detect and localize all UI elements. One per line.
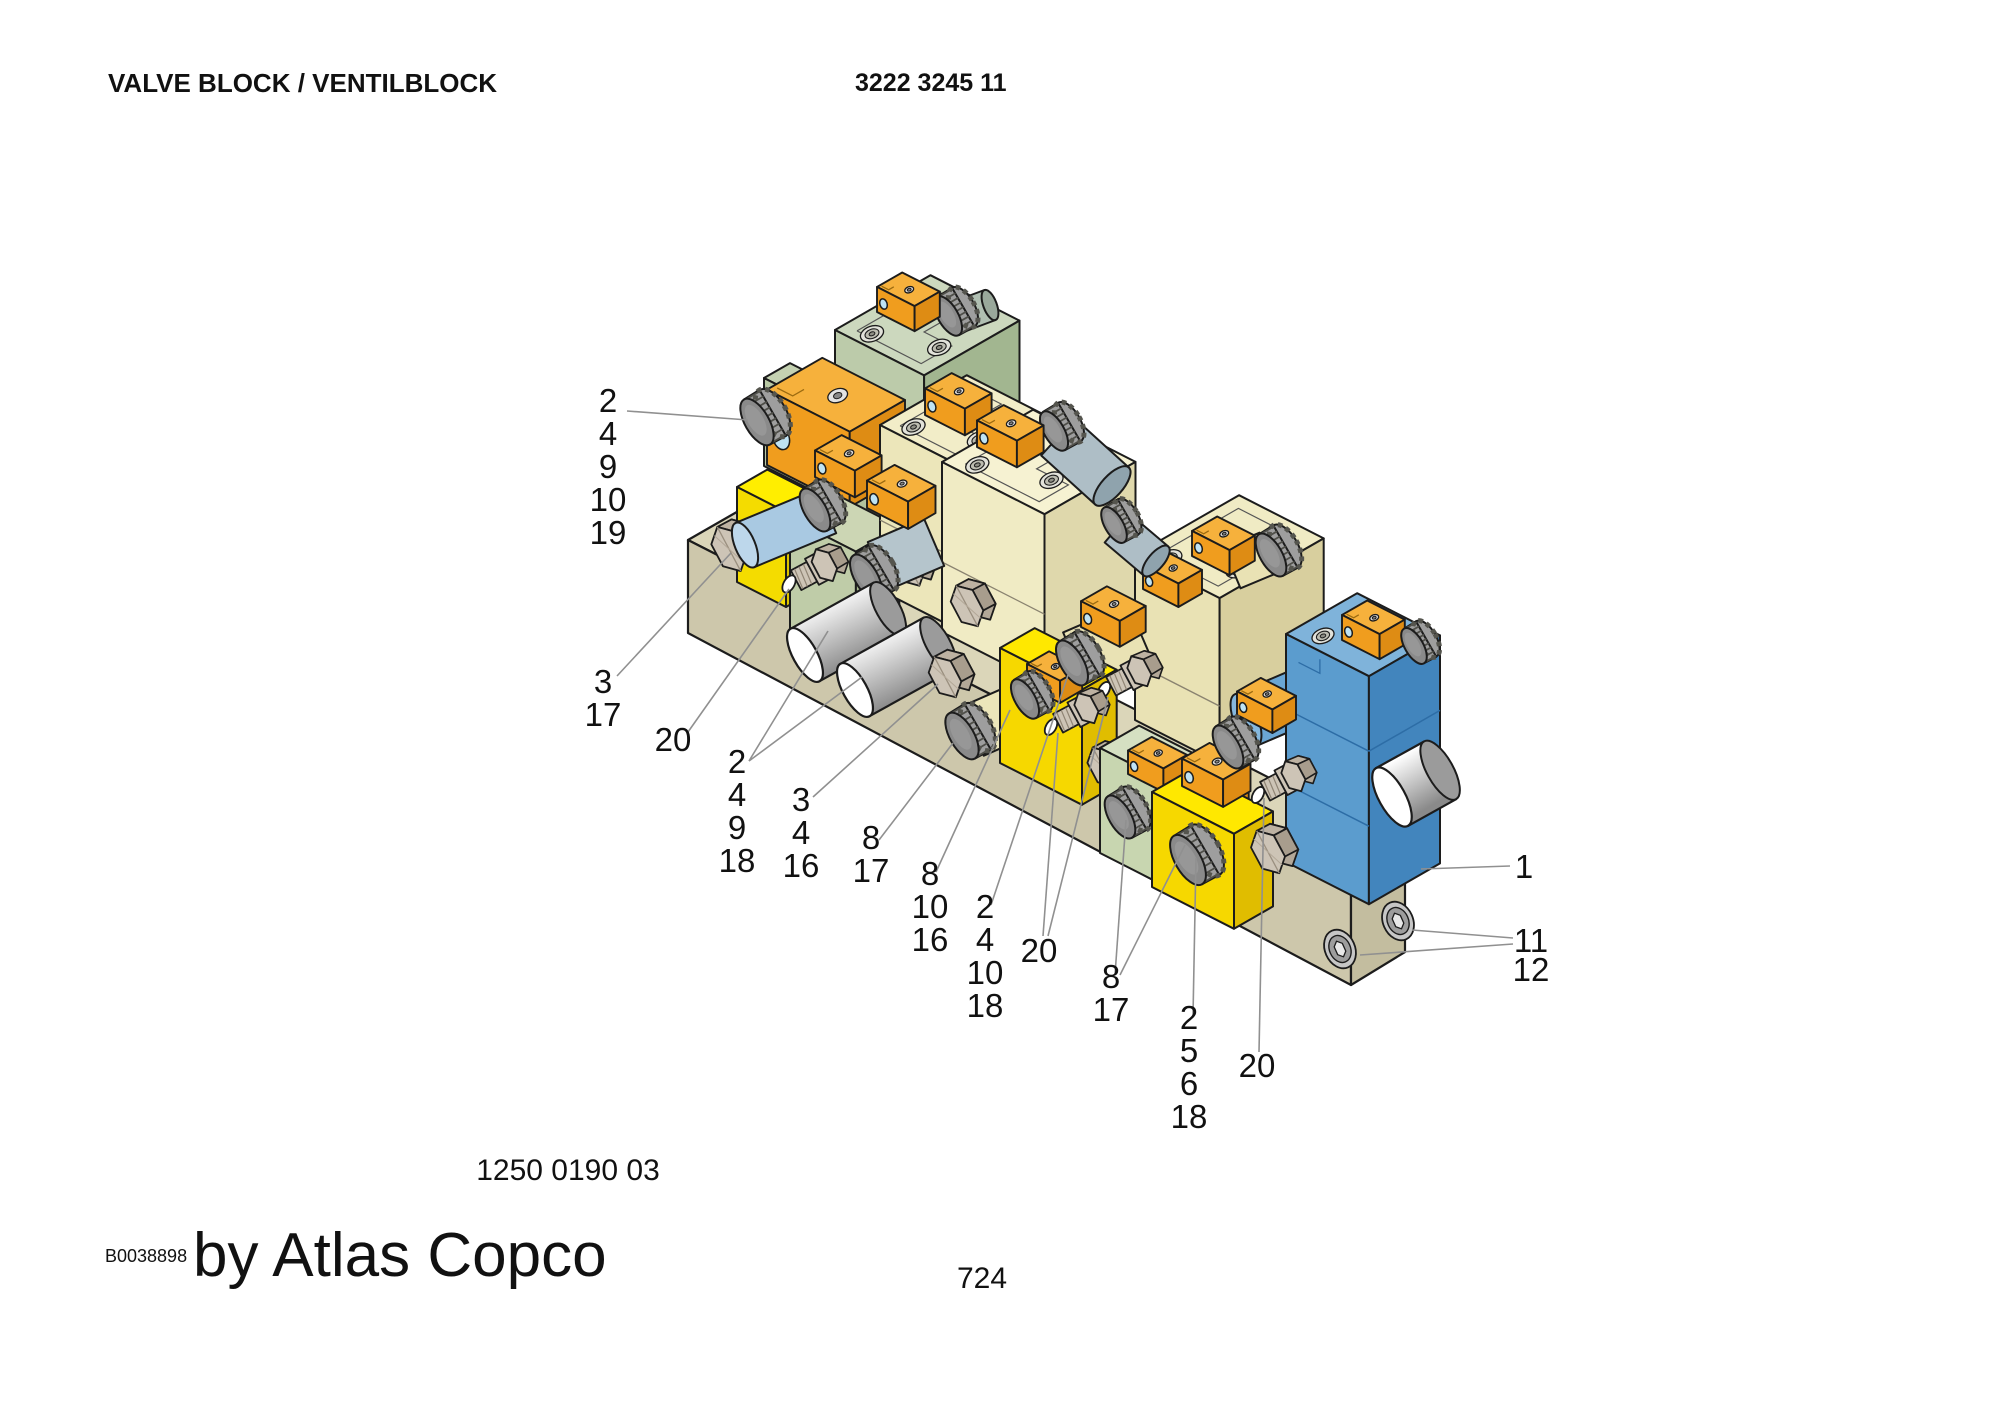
svg-text:9: 9 [728, 809, 746, 846]
svg-text:10: 10 [912, 888, 949, 925]
svg-text:1: 1 [1515, 848, 1533, 885]
svg-text:6: 6 [1180, 1065, 1198, 1102]
svg-text:20: 20 [1021, 932, 1058, 969]
svg-text:17: 17 [585, 696, 622, 733]
svg-text:17: 17 [1093, 991, 1130, 1028]
svg-text:4: 4 [728, 776, 746, 813]
svg-text:10: 10 [967, 954, 1004, 991]
svg-text:20: 20 [1239, 1047, 1276, 1084]
svg-text:724: 724 [957, 1262, 1007, 1295]
svg-text:4: 4 [599, 415, 617, 452]
svg-text:3: 3 [594, 663, 612, 700]
svg-text:18: 18 [719, 842, 756, 879]
svg-text:8: 8 [862, 819, 880, 856]
svg-text:4: 4 [976, 921, 994, 958]
svg-text:2: 2 [728, 743, 746, 780]
svg-text:20: 20 [655, 721, 692, 758]
svg-text:10: 10 [590, 481, 627, 518]
svg-text:B0038898: B0038898 [105, 1246, 187, 1266]
svg-text:2: 2 [976, 888, 994, 925]
svg-text:9: 9 [599, 448, 617, 485]
svg-text:16: 16 [783, 847, 820, 884]
svg-text:5: 5 [1180, 1032, 1198, 1069]
svg-text:19: 19 [590, 514, 627, 551]
svg-text:2: 2 [1180, 999, 1198, 1036]
svg-text:18: 18 [1171, 1098, 1208, 1135]
svg-text:8: 8 [921, 855, 939, 892]
svg-text:4: 4 [792, 814, 810, 851]
svg-text:2: 2 [599, 382, 617, 419]
svg-text:18: 18 [967, 987, 1004, 1024]
svg-text:1250 0190 03: 1250 0190 03 [476, 1154, 660, 1187]
svg-text:12: 12 [1513, 951, 1550, 988]
svg-text:8: 8 [1102, 958, 1120, 995]
svg-text:16: 16 [912, 921, 949, 958]
svg-text:VALVE BLOCK / VENTILBLOCK: VALVE BLOCK / VENTILBLOCK [108, 68, 497, 98]
svg-text:by Atlas Copco: by Atlas Copco [193, 1221, 607, 1290]
svg-text:17: 17 [853, 852, 890, 889]
svg-text:3222 3245 11: 3222 3245 11 [855, 69, 1007, 97]
svg-text:3: 3 [792, 781, 810, 818]
